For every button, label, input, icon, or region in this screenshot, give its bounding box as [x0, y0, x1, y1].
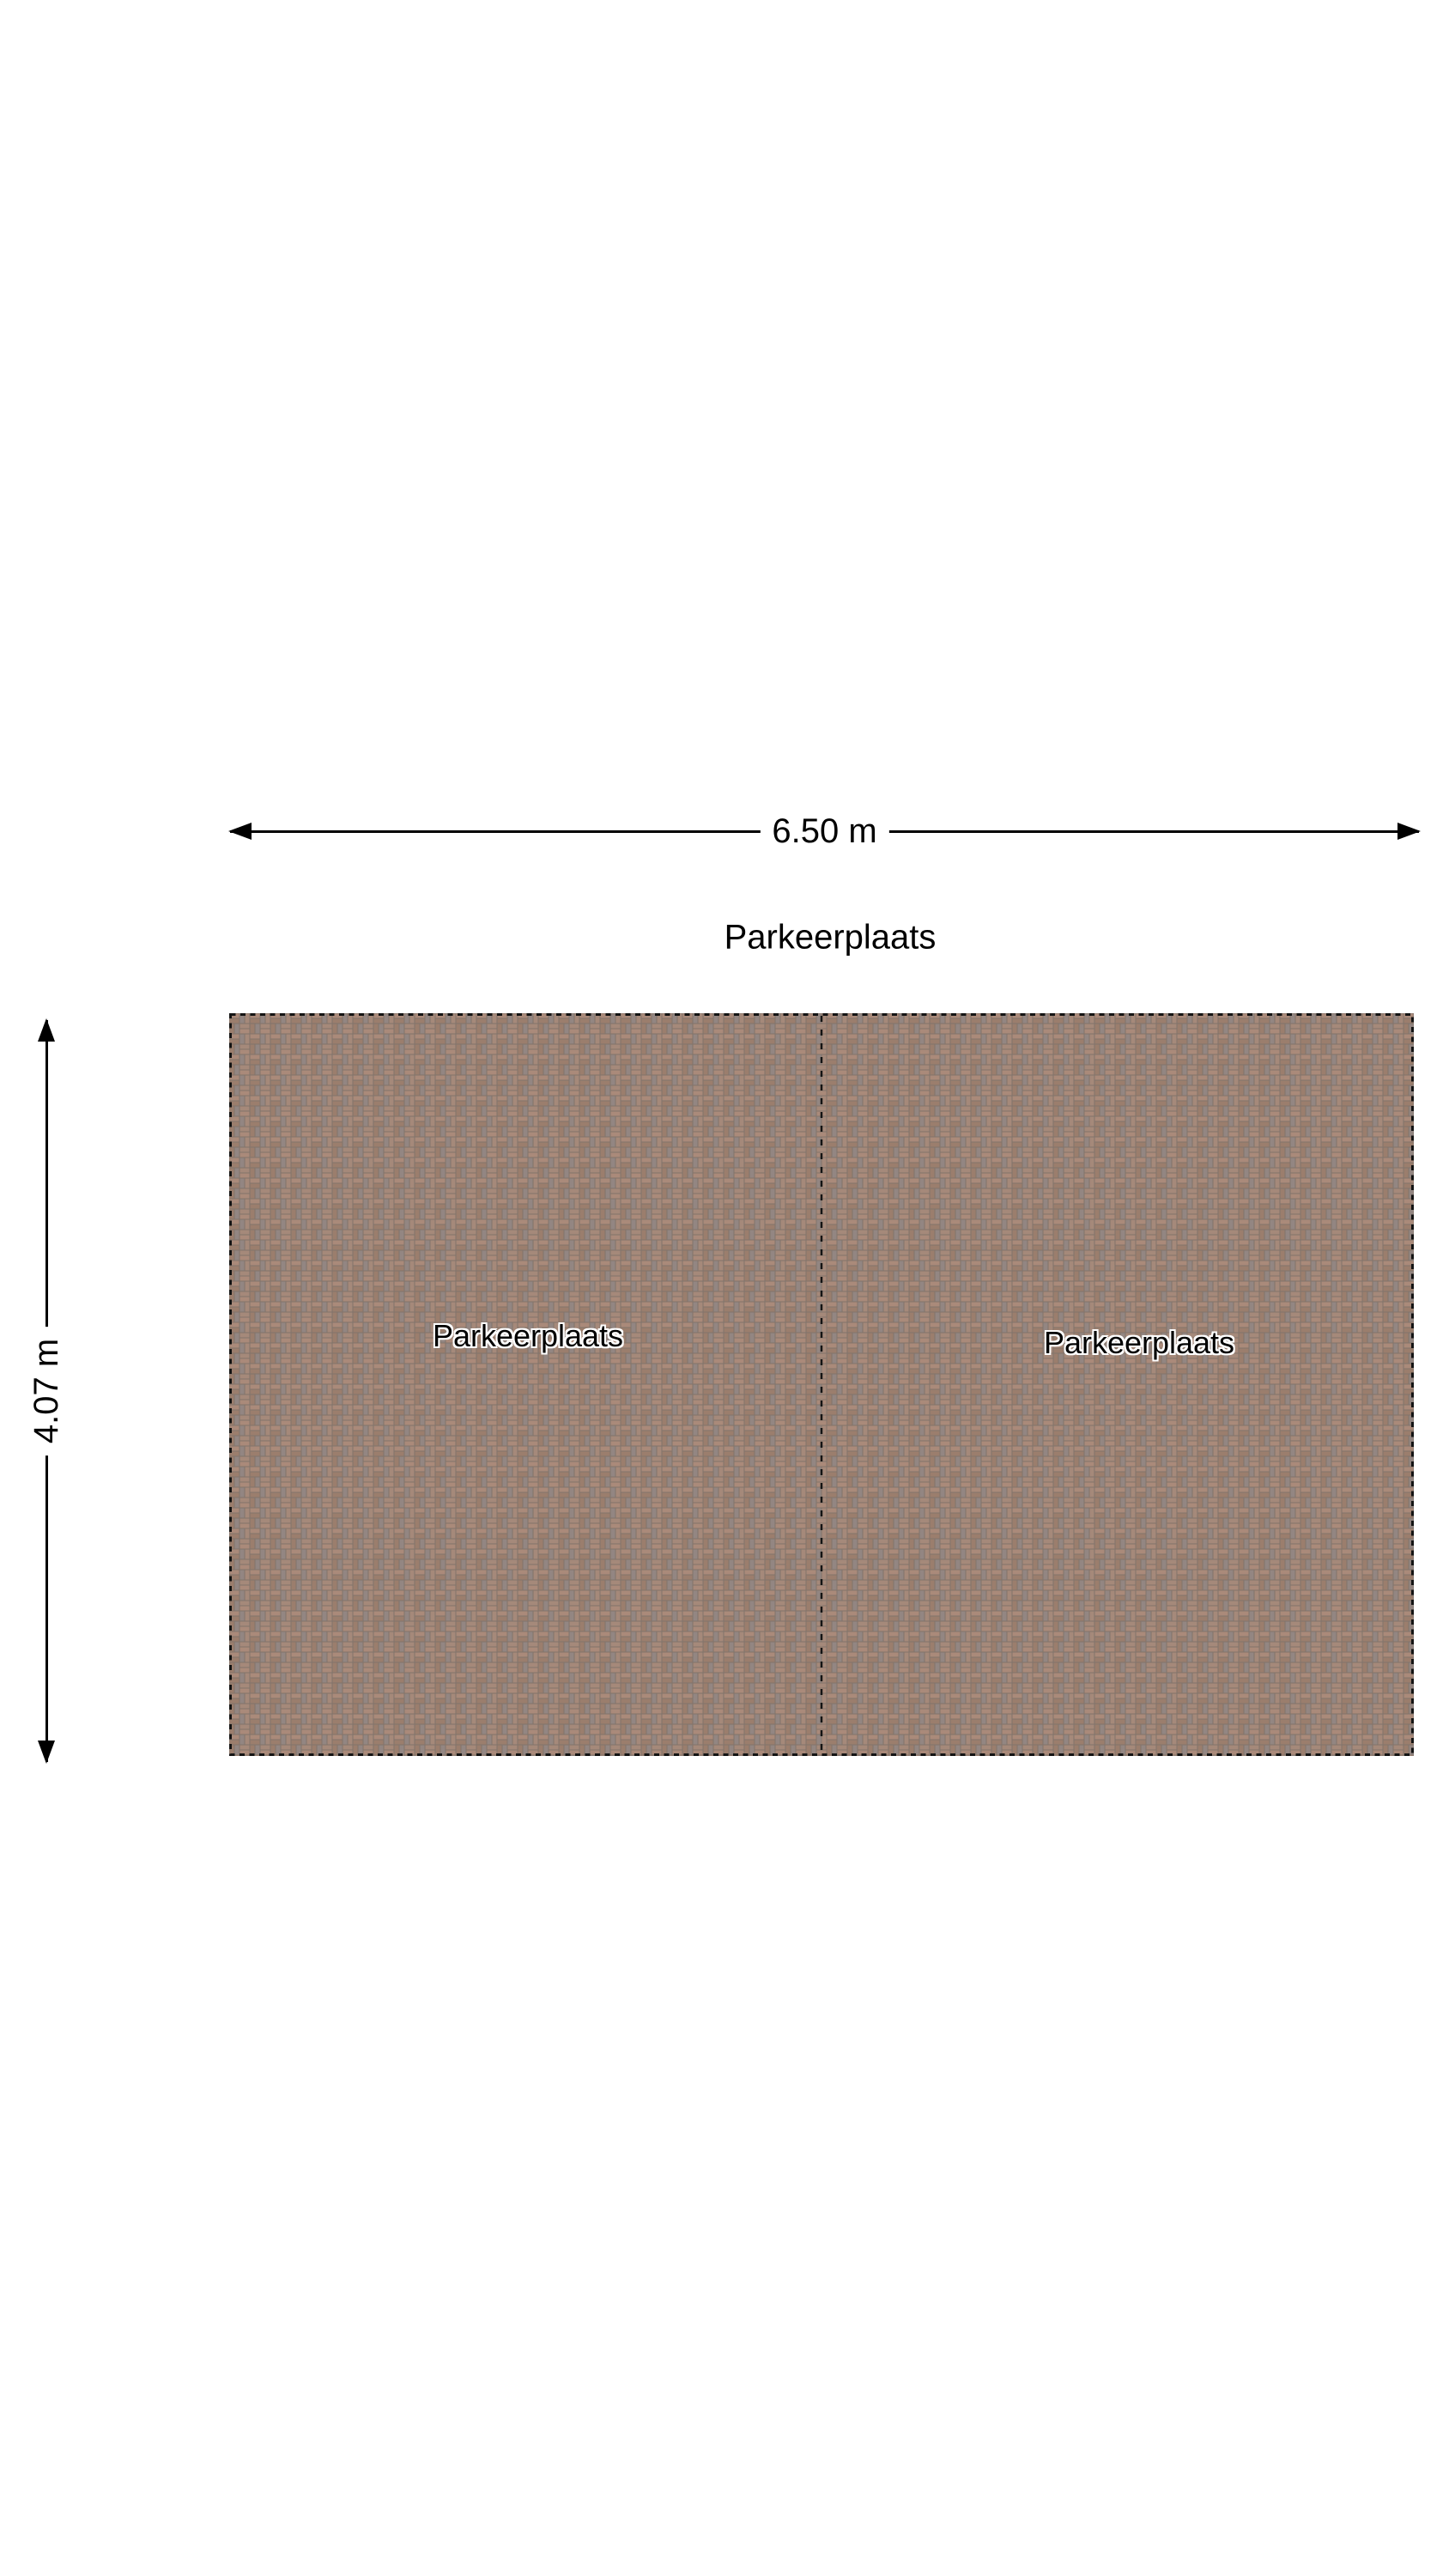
arrow-right-icon	[1397, 823, 1421, 840]
dimension-horizontal: 6.50 m	[228, 817, 1421, 845]
height-dimension-label: 4.07 m	[26, 1327, 67, 1455]
arrow-down-icon	[38, 1741, 55, 1764]
space-label-right: Parkeerplaats	[1044, 1325, 1234, 1361]
width-dimension-label: 6.50 m	[760, 811, 888, 852]
space-label-left: Parkeerplaats	[433, 1318, 623, 1354]
plan-title: Parkeerplaats	[724, 919, 937, 957]
parking-area	[229, 1013, 1414, 1756]
dimension-vertical: 4.07 m	[33, 1018, 60, 1764]
parking-area-drawing	[229, 1013, 1414, 1756]
arrow-up-icon	[38, 1018, 55, 1042]
arrow-left-icon	[228, 823, 252, 840]
paver-texture	[229, 1013, 1414, 1756]
floorplan-canvas: 6.50 m Parkeerplaats 4.07 m	[0, 0, 1449, 2576]
